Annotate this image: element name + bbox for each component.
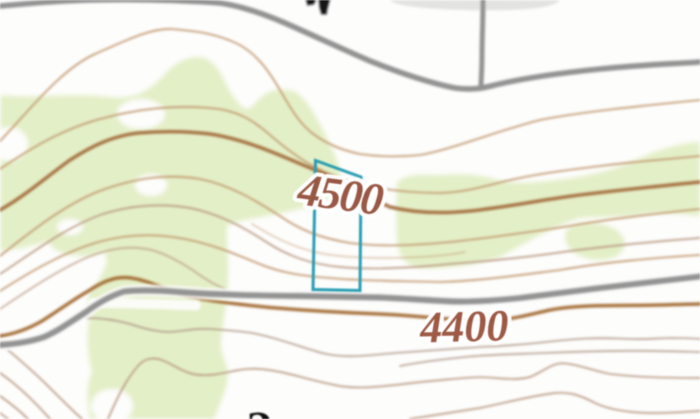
svg-text:2: 2 (246, 400, 273, 419)
svg-text:4400: 4400 (418, 300, 508, 352)
